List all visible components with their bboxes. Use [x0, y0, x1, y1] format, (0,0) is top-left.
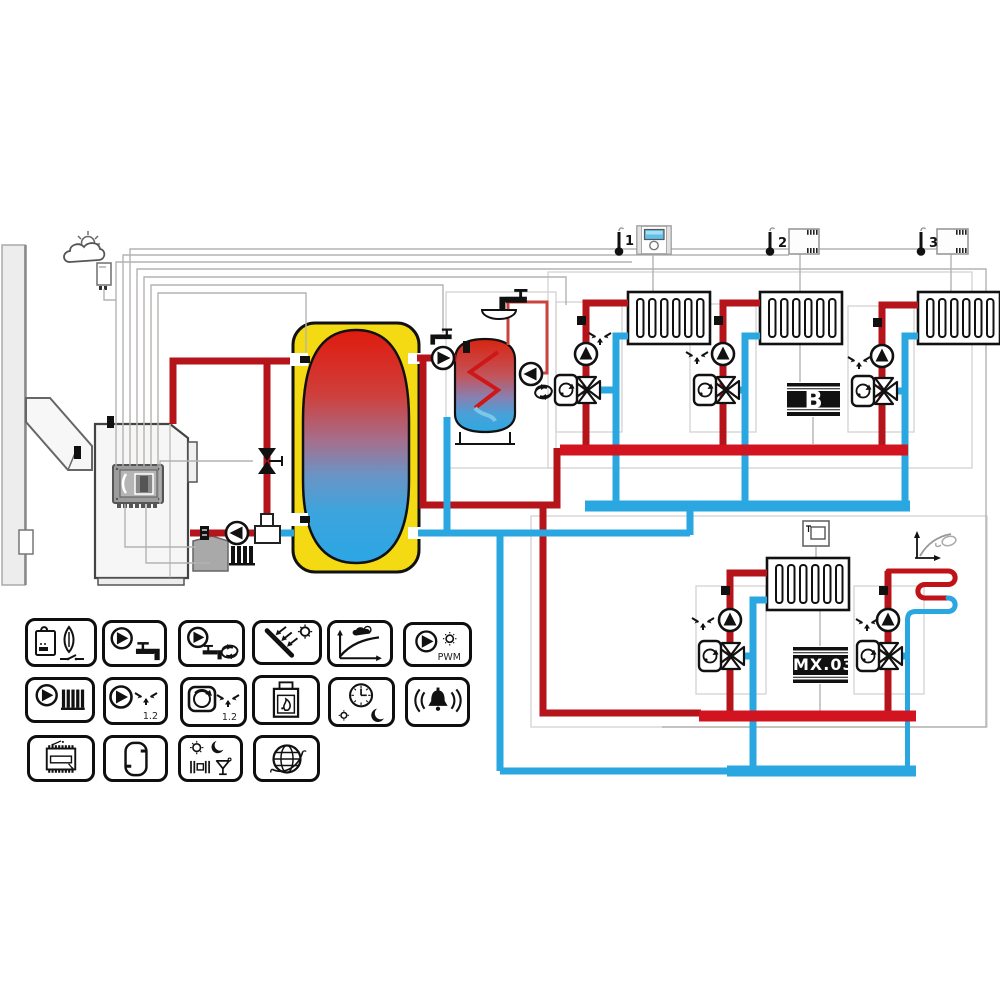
palette-solar-collector-button[interactable]	[252, 620, 322, 665]
boiler-controller	[113, 465, 163, 508]
alarm-bell-icon	[411, 682, 465, 722]
weather-cloud-sun-icon	[64, 231, 104, 262]
thermostat-1-number: 1	[625, 234, 634, 249]
dhw-loading-pump	[432, 347, 454, 369]
hydraulic-diagram: 1 2 3 B MX.03	[0, 0, 1000, 1000]
circuit2-valve-servo	[694, 375, 716, 405]
palette-operating-modes-button[interactable]	[178, 735, 243, 782]
circuit1-pump	[575, 343, 597, 365]
heating-curve-icon	[914, 531, 957, 561]
schematic-canvas	[0, 0, 1000, 1000]
radiator-circuit-1	[628, 292, 710, 344]
palette-heating-pump-button[interactable]	[25, 677, 95, 723]
circuit1-valve-servo	[555, 375, 577, 405]
palette-time-schedule-button[interactable]	[328, 677, 395, 727]
circuit3-mix-arrows-icon	[848, 357, 870, 369]
basin-icon	[482, 310, 516, 319]
circuit5-mix-arrows-icon	[856, 619, 878, 631]
palette-dhw-circulation-button[interactable]	[178, 620, 245, 667]
operating-modes-icon	[184, 739, 238, 779]
cleanout-door	[19, 530, 33, 554]
circuit2-mix-arrows-icon	[686, 352, 708, 364]
radiator-circuit-3	[918, 292, 1000, 344]
clock-day-night-icon	[334, 681, 390, 723]
circuit2-pump	[712, 343, 734, 365]
thermostat-3-number: 3	[929, 236, 938, 251]
boiler-flue-sensor	[107, 416, 114, 428]
panel-knob	[650, 241, 658, 249]
bypass-valve	[258, 448, 282, 474]
fireplace-icon	[260, 679, 312, 721]
circuit1-mix-arrows-icon	[589, 333, 611, 345]
palette-expansion-module-button[interactable]	[27, 735, 95, 782]
internet-globe-icon	[261, 739, 313, 779]
pwm-label: PWM	[438, 652, 461, 663]
buffer-bottom-sensor	[300, 516, 310, 523]
tap-icon-buffer	[430, 329, 452, 345]
circulation-arrows-icon	[535, 384, 552, 400]
palette-buffer-tank-button[interactable]	[103, 735, 168, 782]
boiler-return-valve	[200, 526, 209, 540]
pump-radiator-icon	[31, 681, 89, 719]
dhw-sensor	[463, 341, 470, 353]
chimney-wall	[2, 245, 92, 585]
burner-fan-grille	[229, 546, 255, 566]
flue-duct	[26, 398, 92, 470]
module-b-label: B	[787, 388, 840, 412]
circuit5-valve-servo	[857, 641, 879, 671]
mixer-12-label-a: 1.2	[143, 711, 158, 722]
circuit4-valve-servo	[699, 641, 721, 671]
buffer-top-sensor	[300, 356, 310, 363]
circuit4-pump	[719, 609, 741, 631]
boiler-pump	[226, 522, 248, 544]
room-panel-lower	[803, 521, 829, 546]
palette-alarm-button[interactable]	[405, 677, 470, 727]
thermostat-2-number: 2	[778, 236, 787, 251]
buffer-tank	[286, 323, 422, 572]
circuit5-pump	[877, 609, 899, 631]
module-mx03-label: MX.03	[793, 653, 848, 677]
room-thermostat-3	[917, 228, 968, 256]
radiator-circuit-4	[767, 558, 849, 610]
pump-circulation-icon	[184, 625, 240, 663]
weather-curve-icon	[332, 625, 388, 663]
palette-mixer-servo-button[interactable]: 1.2	[180, 677, 247, 727]
expansion-module-icon	[33, 740, 89, 778]
pump-tap-icon	[107, 625, 163, 663]
outdoor-sensor	[97, 263, 111, 290]
circuit4-mix-arrows-icon	[692, 618, 714, 630]
palette-weather-curve-button[interactable]	[327, 620, 393, 667]
buffer-tank-icon	[108, 740, 164, 778]
palette-mixer-circuit-pump-button[interactable]: 1.2	[103, 677, 168, 725]
mixer-12-label-b: 1.2	[222, 712, 237, 723]
room-thermostat-1	[615, 226, 671, 256]
boiler-return-fitting	[255, 514, 280, 543]
palette-fireplace-button[interactable]	[252, 675, 320, 725]
dhw-tank	[455, 339, 515, 444]
radiator-circuit-2	[760, 292, 842, 344]
pellet-burner	[193, 536, 228, 571]
circuit3-pump	[871, 345, 893, 367]
palette-pwm-solar-pump-button[interactable]: PWM	[403, 622, 472, 667]
dhw-circulation-pump	[520, 363, 542, 385]
palette-boiler-ignition-button[interactable]	[25, 618, 97, 667]
circuit3-valve-servo	[852, 376, 874, 406]
solar-collector-icon	[259, 624, 315, 662]
palette-dhw-pump-button[interactable]	[102, 620, 167, 667]
boiler-flame-icon	[32, 623, 90, 663]
room-thermostat-2	[766, 228, 819, 256]
palette-internet-module-button[interactable]	[253, 735, 320, 782]
